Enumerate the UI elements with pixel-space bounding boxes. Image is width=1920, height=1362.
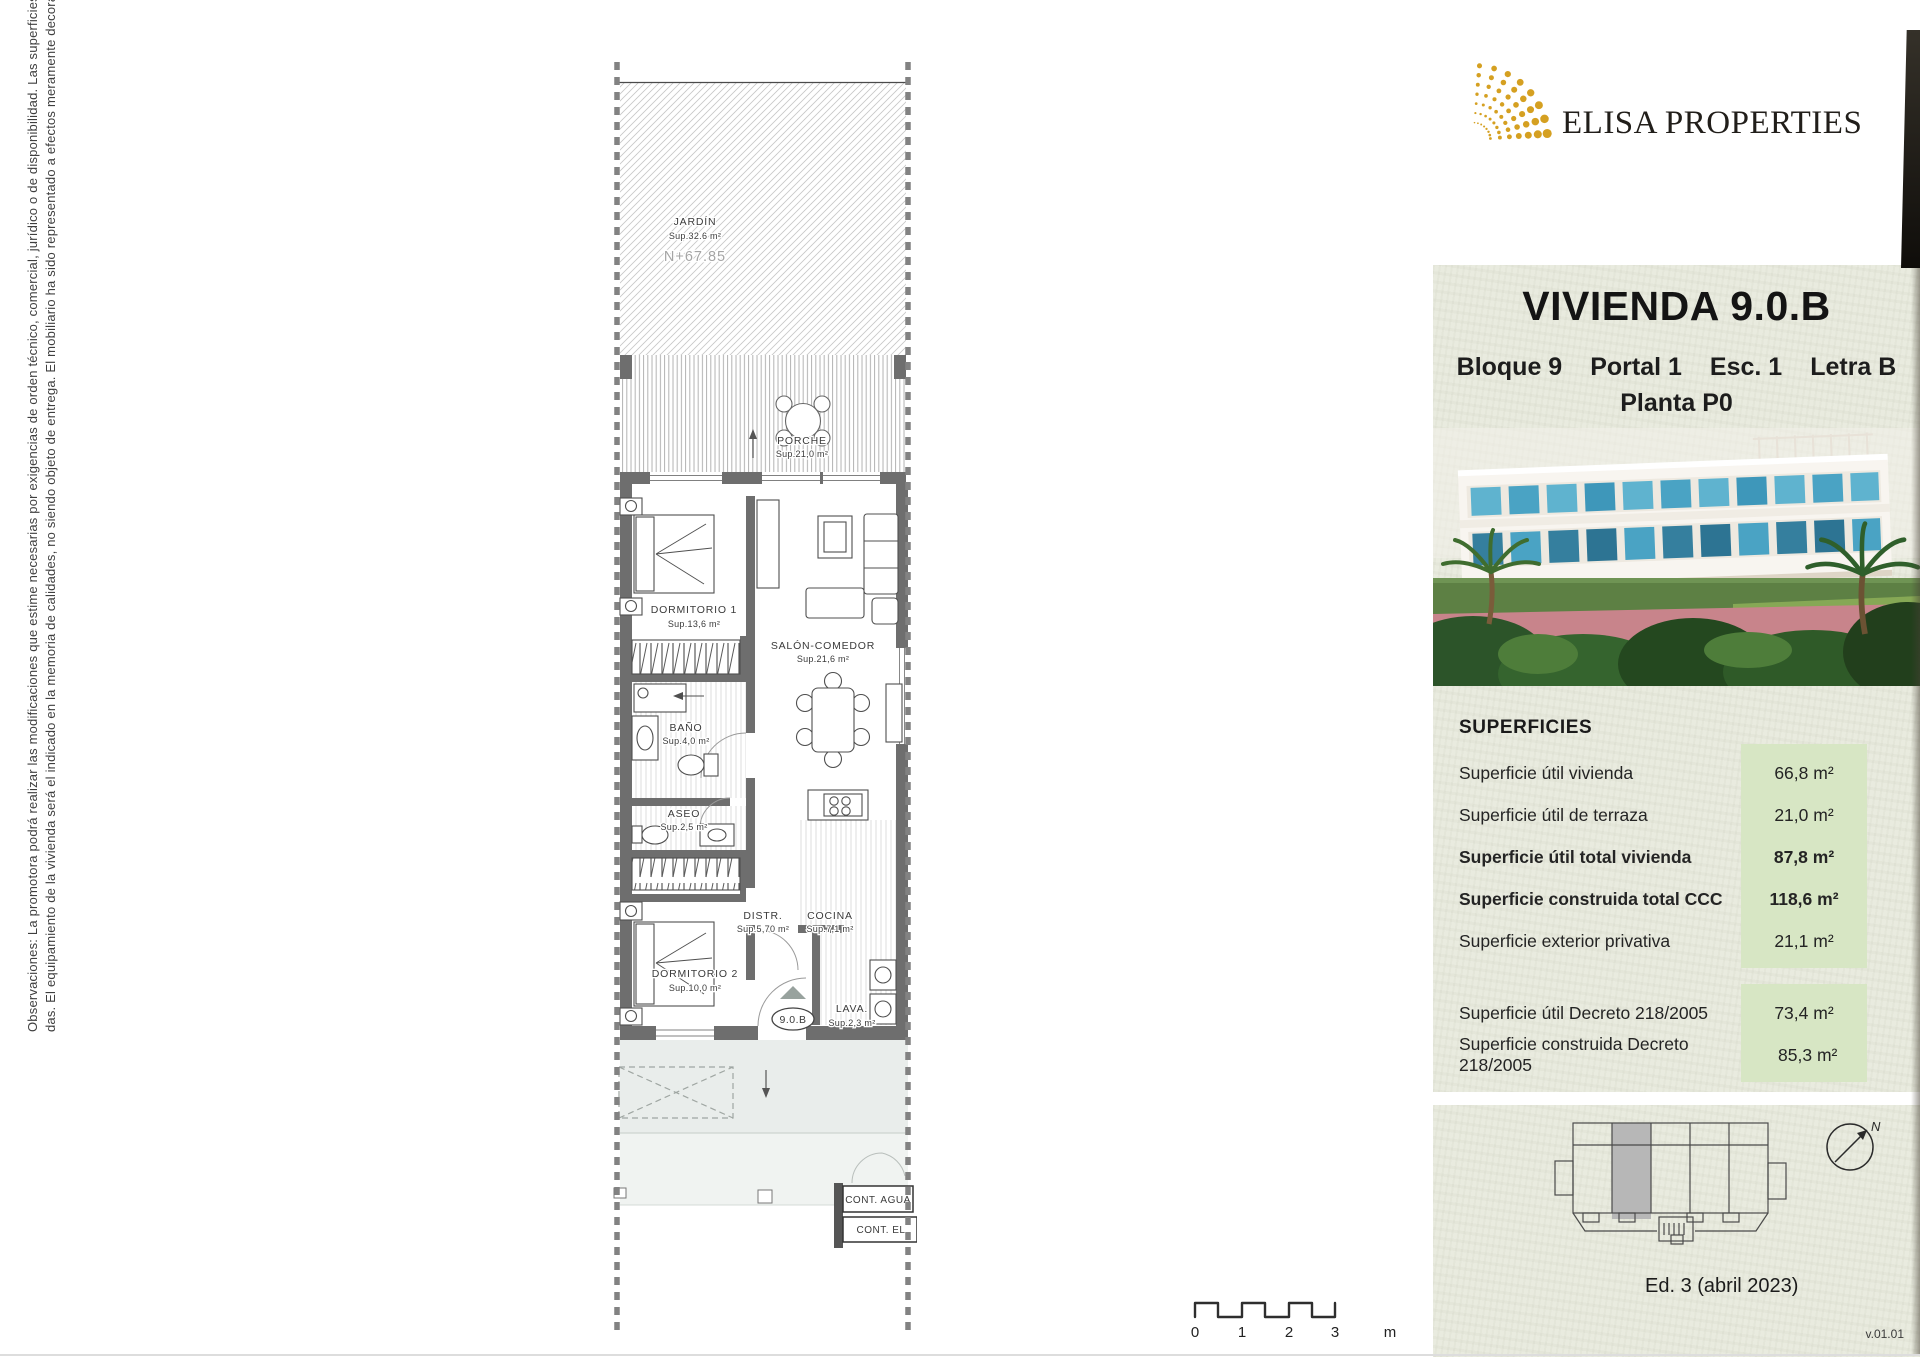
unit-esc: Esc. 1	[1710, 353, 1782, 382]
scale-unit: m	[1384, 1324, 1397, 1341]
keyplan-drawing: N	[1433, 1105, 1920, 1357]
table-row: Superficie construida total CCC 118,6 m²	[1459, 878, 1900, 920]
north-label: N	[1871, 1119, 1881, 1134]
disclaimer-text: Observaciones: La promotora podrá realiz…	[24, 132, 59, 1032]
room-label-porche: PORCHE	[777, 435, 827, 447]
row-label: Superficie útil total vivienda	[1459, 847, 1691, 868]
version-label: v.01.01	[1866, 1327, 1904, 1341]
room-area-jardin: Sup.32.6 m²	[669, 231, 721, 241]
unit-planta: Planta P0	[1433, 389, 1920, 418]
room-area-distr: Sup.5,70 m²	[737, 924, 789, 934]
edition-label: Ed. 3 (abril 2023)	[1645, 1275, 1798, 1298]
building-footprint	[1555, 1123, 1786, 1244]
utility-boxes: CONT. AGUA CONT. EL	[834, 1183, 917, 1248]
table-row: Superficie útil vivienda 66,8 m²	[1459, 752, 1900, 794]
terrace-area	[614, 1040, 908, 1205]
room-label-distr: DISTR.	[743, 910, 782, 922]
room-level-jardin: N+67.85	[664, 249, 726, 265]
row-label: Superficie exterior privativa	[1459, 931, 1670, 952]
elisa-logo-icon	[1466, 58, 1552, 148]
unit-bloque: Bloque 9	[1457, 353, 1563, 382]
room-area-dormitorio2: Sup.10,0 m²	[669, 983, 721, 993]
room-area-cocina: Sup.7,1 m²	[806, 924, 853, 934]
table-row: Superficie construida Decreto 218/2005 8…	[1459, 1034, 1900, 1076]
room-label-bano: BAÑO	[670, 721, 703, 734]
unit-letra: Letra B	[1810, 353, 1896, 382]
row-value: 73,4 m²	[1741, 1003, 1867, 1024]
building-photo	[1433, 428, 1920, 686]
row-value: 21,0 m²	[1741, 805, 1867, 826]
row-label: Superficie útil Decreto 218/2005	[1459, 1003, 1708, 1024]
table-row: Superficie útil total vivienda 87,8 m²	[1459, 836, 1900, 878]
superficies-heading: SUPERFICIES	[1459, 717, 1592, 739]
room-area-aseo: Sup.2,5 m²	[660, 822, 707, 832]
page-bottom-edge	[0, 1354, 1920, 1356]
room-label-aseo: ASEO	[668, 808, 700, 820]
scale-tick-0: 0	[1191, 1324, 1199, 1341]
unit-portal: Portal 1	[1590, 353, 1682, 382]
disclaimer-line-1: Observaciones: La promotora podrá realiz…	[24, 132, 42, 1032]
brand-logo: ELISA PROPERTIES	[1466, 58, 1862, 148]
porch-area: PORCHE Sup.21,0 m²	[620, 355, 906, 472]
room-area-bano: Sup.4,0 m²	[662, 736, 709, 746]
superficies-group-1: Superficie útil vivienda 66,8 m² Superfi…	[1459, 752, 1900, 962]
row-value: 87,8 m²	[1741, 847, 1867, 868]
superficies-group-2: Superficie útil Decreto 218/2005 73,4 m²…	[1459, 992, 1900, 1076]
table-row: Superficie útil Decreto 218/2005 73,4 m²	[1459, 992, 1900, 1034]
room-label-lava: LAVA.	[836, 1003, 868, 1015]
north-arrow-icon: N	[1827, 1119, 1881, 1170]
unit-card-panel: VIVIENDA 9.0.B Bloque 9 Portal 1 Esc. 1 …	[1433, 265, 1920, 1092]
disclaimer-line-2: das. El equipamiento de la vivienda será…	[42, 132, 60, 1032]
row-value: 118,6 m²	[1741, 889, 1867, 910]
row-label: Superficie construida Decreto 218/2005	[1459, 1034, 1748, 1076]
room-area-lava: Sup.2,3 m²	[828, 1018, 875, 1028]
room-area-salon: Sup.21,6 m²	[797, 654, 849, 664]
scale-tick-2: 2	[1285, 1324, 1293, 1341]
room-area-dormitorio1: Sup.13,6 m²	[668, 619, 720, 629]
unit-badge-label: 9.0.B	[779, 1014, 806, 1026]
room-label-jardin: JARDÍN	[674, 215, 717, 228]
keyplan-panel: N Ed. 3 (abril 2023) v.01.01	[1433, 1105, 1920, 1357]
room-label-cocina: COCINA	[807, 910, 853, 922]
room-area-porche: Sup.21,0 m²	[776, 449, 828, 459]
floor-plan: JARDÍN Sup.32.6 m² N+67.85 PORCHE Sup.21…	[605, 50, 917, 1342]
scale-bar: 0 1 2 3 m	[1185, 1292, 1415, 1344]
row-value: 85,3 m²	[1748, 1045, 1867, 1066]
brand-name: ELISA PROPERTIES	[1562, 105, 1862, 148]
scale-tick-3: 3	[1331, 1324, 1339, 1341]
row-label: Superficie útil vivienda	[1459, 763, 1633, 784]
table-row: Superficie exterior privativa 21,1 m²	[1459, 920, 1900, 962]
room-label-salon: SALÓN-COMEDOR	[771, 639, 875, 652]
unit-title: VIVIENDA 9.0.B	[1433, 283, 1920, 330]
row-value: 66,8 m²	[1741, 763, 1867, 784]
garden-area: JARDÍN Sup.32.6 m² N+67.85	[617, 83, 908, 356]
cont-el-label: CONT. EL	[856, 1225, 905, 1236]
room-label-dormitorio1: DORMITORIO 1	[651, 604, 737, 616]
cont-agua-label: CONT. AGUA	[845, 1195, 911, 1206]
page-shadow-top-right	[1901, 30, 1920, 268]
table-row: Superficie útil de terraza 21,0 m²	[1459, 794, 1900, 836]
row-label: Superficie construida total CCC	[1459, 889, 1723, 910]
building-render	[1433, 428, 1920, 686]
row-value: 21,1 m²	[1741, 931, 1867, 952]
row-label: Superficie útil de terraza	[1459, 805, 1648, 826]
page-shadow-right	[1911, 268, 1920, 1356]
unit-subtitle: Bloque 9 Portal 1 Esc. 1 Letra B	[1433, 353, 1920, 382]
scale-tick-1: 1	[1238, 1324, 1246, 1341]
room-label-dormitorio2: DORMITORIO 2	[652, 968, 738, 980]
highlighted-unit	[1612, 1123, 1651, 1219]
